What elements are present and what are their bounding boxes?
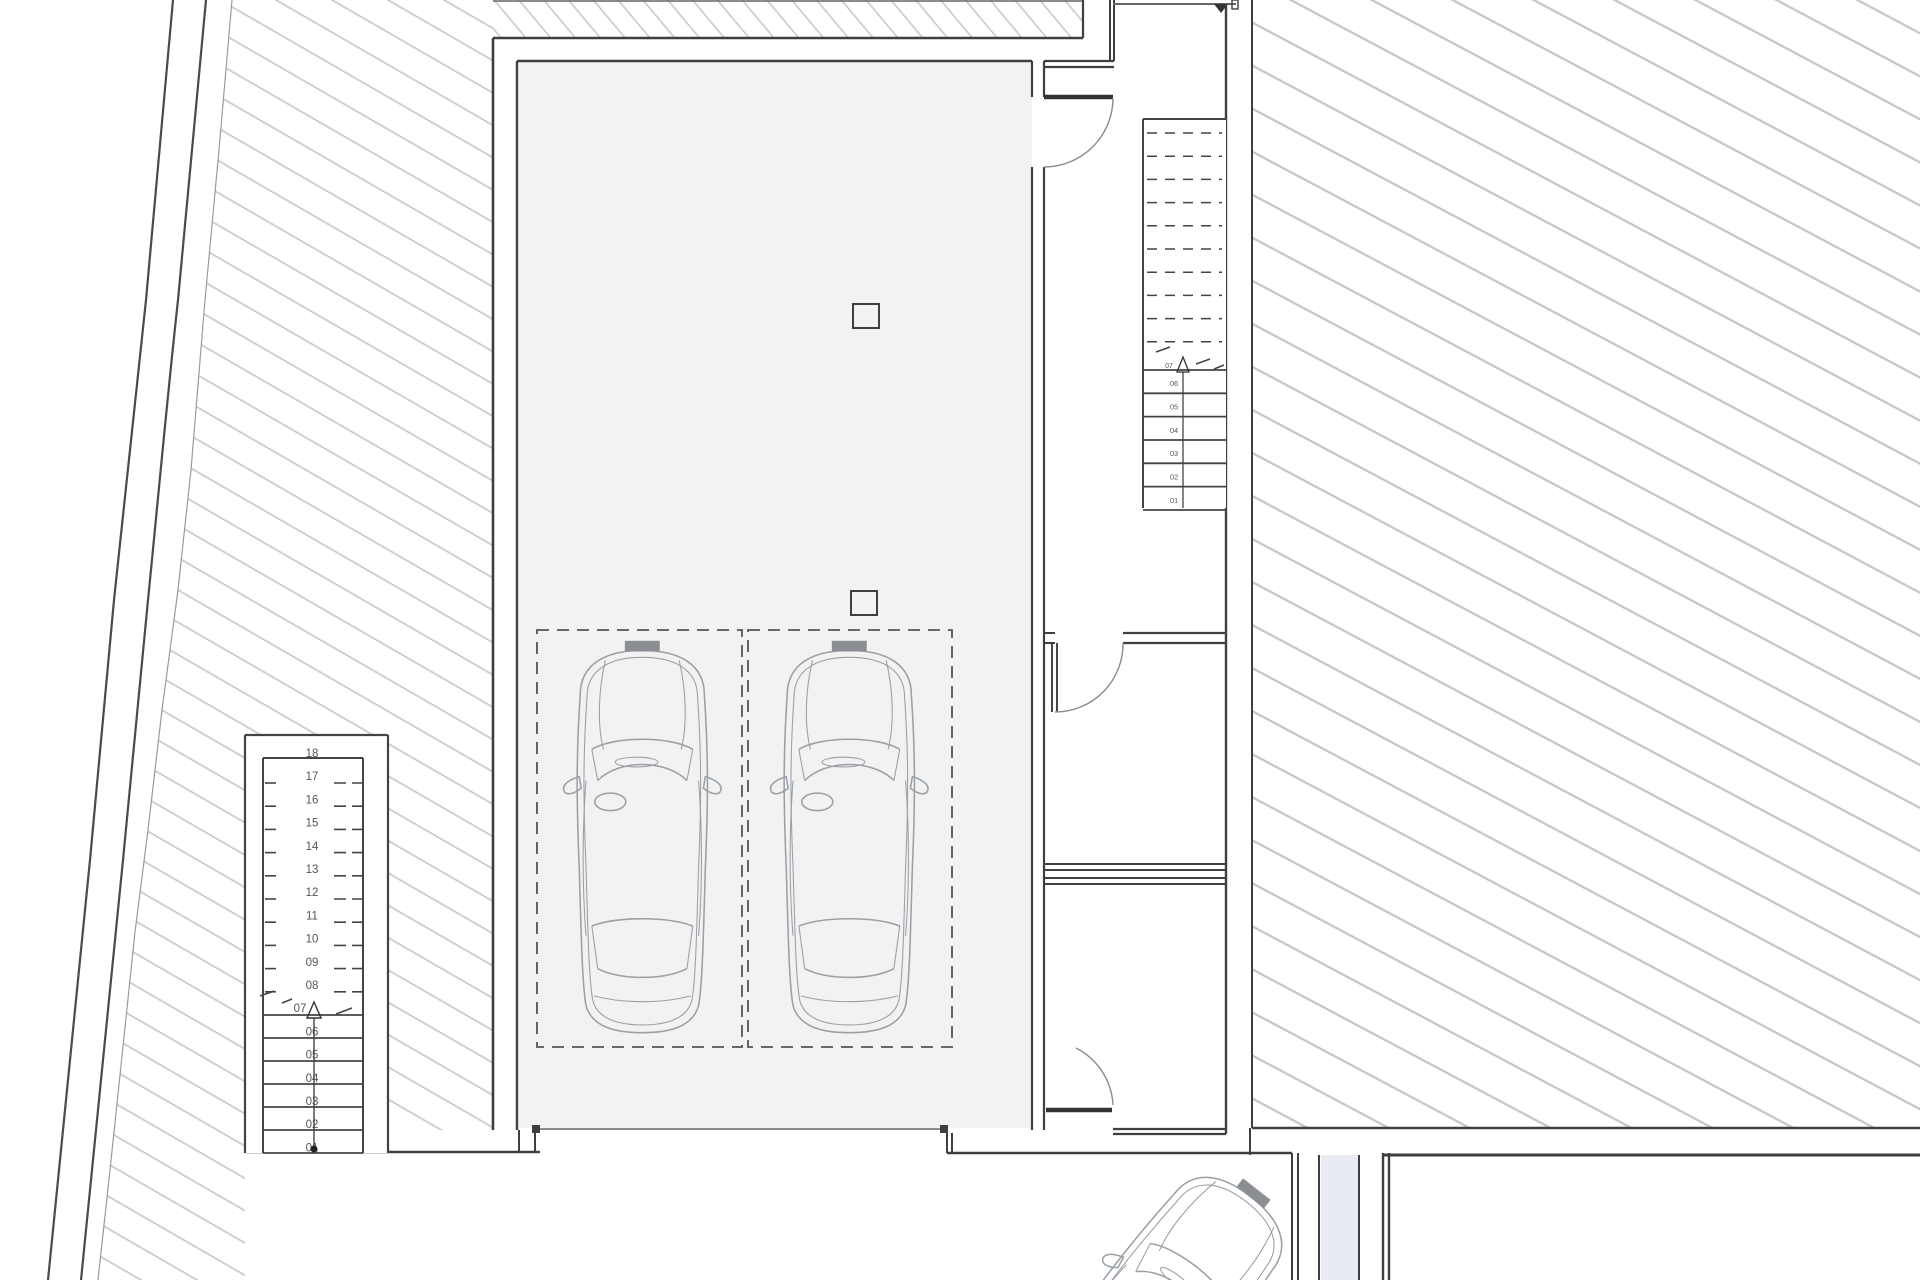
floor-plan: 181716151413121110090807060504030201 070…: [0, 0, 1920, 1280]
garage-floor: [519, 62, 1032, 1128]
stair-step-number: 15: [306, 818, 319, 830]
stair-step-number: 02: [1170, 473, 1178, 482]
stair-step-number: 06: [1170, 379, 1178, 388]
garage-room: [493, 38, 1083, 1133]
stair-step-number: 06: [306, 1026, 319, 1038]
garage-door-post-right: [940, 1125, 948, 1133]
door-bottom-swing-arc: [1076, 1048, 1113, 1105]
stair-step-number: 13: [306, 864, 319, 876]
door-bottom: [1046, 1048, 1226, 1134]
left-stair-start-dot: [311, 1146, 318, 1153]
stair-step-number: 05: [306, 1050, 319, 1062]
stair-step-number: 12: [306, 887, 319, 899]
earth-hatch-right-region: [1252, 0, 1920, 1128]
stair-step-number: 07: [1165, 363, 1173, 370]
car-entering: [953, 1141, 1318, 1280]
door-top: [1044, 97, 1113, 167]
corridor-partition-walls: [1044, 864, 1226, 884]
left-staircase: 181716151413121110090807060504030201: [245, 735, 388, 1154]
stair-step-number: 08: [306, 980, 319, 992]
stair-step-number: 02: [306, 1119, 319, 1131]
stair-step-number: 03: [306, 1096, 319, 1108]
door-middle-leaf: [1052, 643, 1057, 712]
stair-step-number: 05: [1170, 402, 1178, 411]
stair-step-number: 16: [306, 794, 319, 806]
wall-section-hatch-band-top: [493, 0, 1083, 38]
stair-step-number: 04: [306, 1073, 319, 1085]
stair-step-number: 14: [306, 841, 319, 853]
stair-step-number: 10: [306, 934, 319, 946]
floor-plan-canvas: 181716151413121110090807060504030201 070…: [0, 0, 1920, 1280]
stair-step-number: 17: [306, 771, 319, 783]
stair-step-number: 11: [306, 910, 318, 922]
stair-step-number: 18: [306, 748, 319, 760]
shaft: [1321, 1155, 1358, 1280]
stair-step-number: 07: [294, 1003, 307, 1015]
door-middle: [1044, 633, 1226, 712]
stair-step-number: 09: [306, 957, 319, 969]
stair-step-number: 01: [1170, 496, 1178, 505]
stair-step-number: 03: [1170, 449, 1178, 458]
door-top-swing-arc: [1044, 98, 1113, 167]
right-staircase: 07060504030201: [1143, 119, 1226, 510]
stair-step-number: 04: [1170, 426, 1178, 435]
door-middle-swing-arc: [1055, 643, 1123, 712]
driveway-walls: [245, 1128, 1920, 1280]
